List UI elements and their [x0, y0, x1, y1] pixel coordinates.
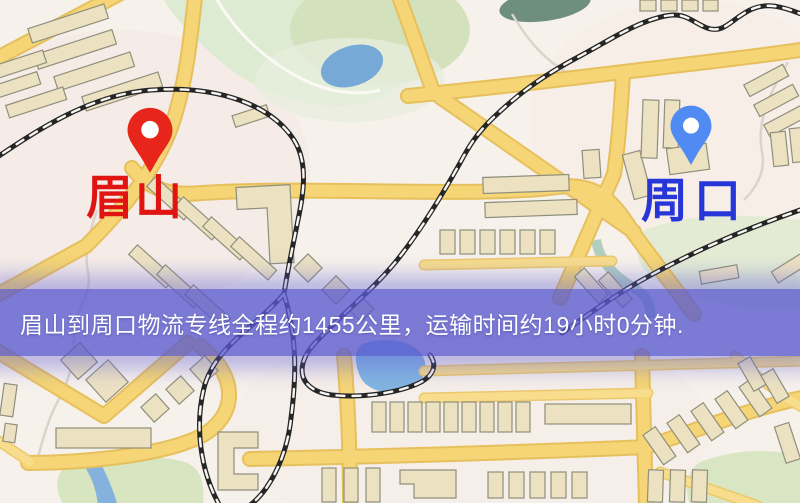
- destination-city-label: 周口: [641, 179, 747, 226]
- origin-city-label: 眉山: [86, 176, 184, 223]
- route-info-text: 眉山到周口物流专线全程约1455公里，运输时间约19小时0分钟.: [0, 306, 684, 340]
- route-info-banner: 眉山到周口物流专线全程约1455公里，运输时间约19小时0分钟.: [0, 289, 800, 356]
- origin-pin-icon[interactable]: [124, 106, 176, 174]
- destination-pin-icon[interactable]: [668, 104, 714, 166]
- logistics-route-map: 眉山 周口 眉山到周口物流专线全程约1455公里，运输时间约19小时0分钟.: [0, 0, 800, 503]
- map-canvas[interactable]: [0, 0, 800, 503]
